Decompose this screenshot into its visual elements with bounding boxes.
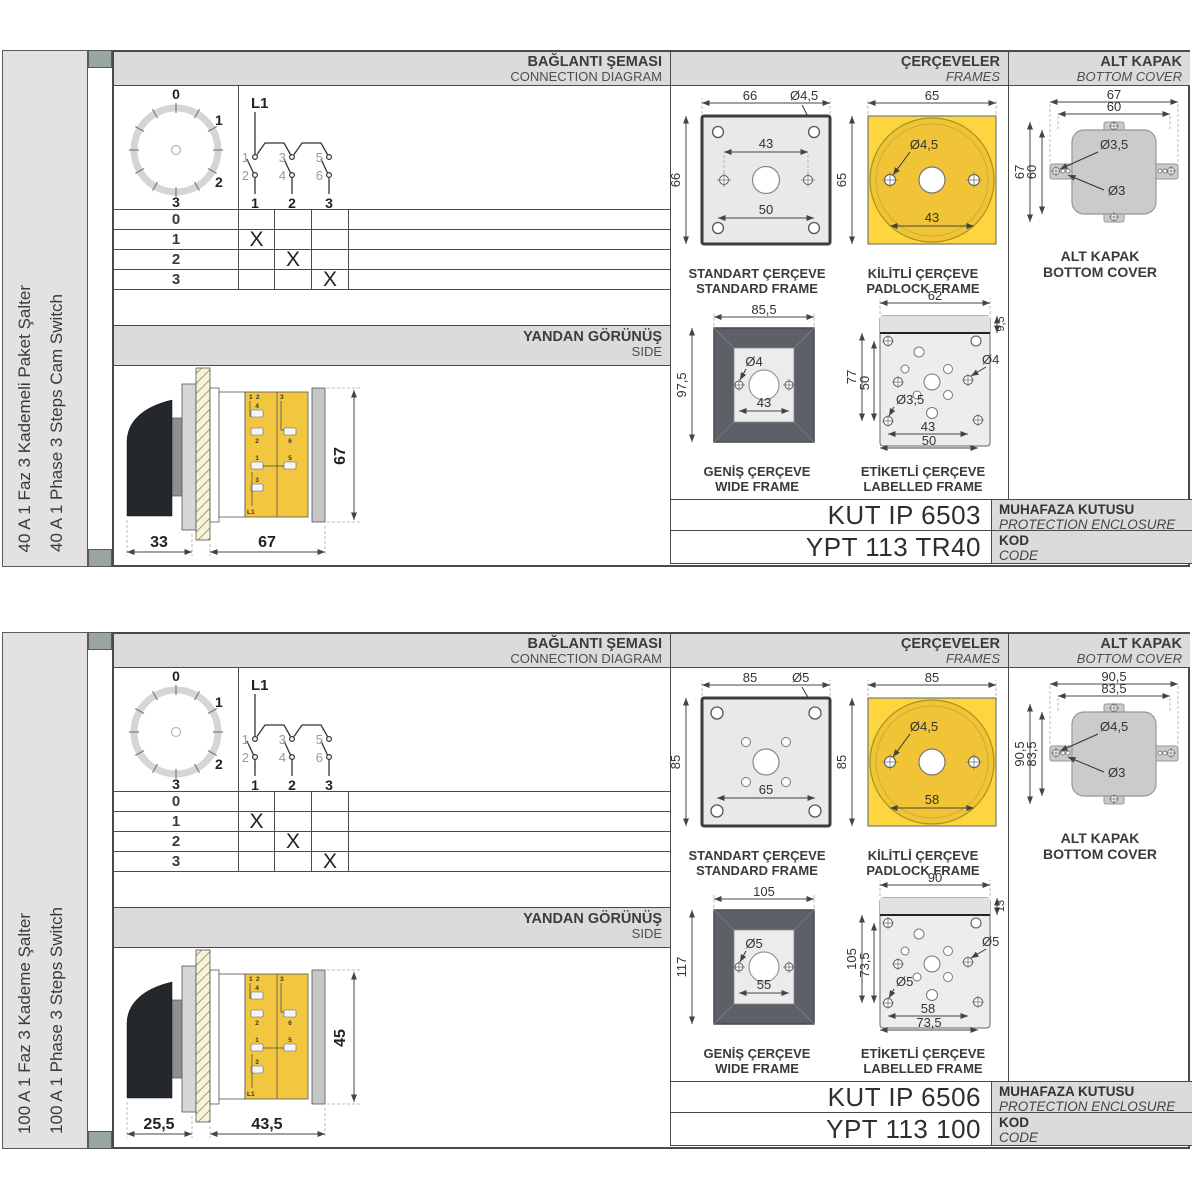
svg-text:5: 5 <box>288 1037 292 1044</box>
datasheet-panel: BAĞLANTI ŞEMASI CONNECTION DIAGRAM ÇERÇE… <box>112 50 1190 567</box>
product-title-tr: 40 A 1 Faz 3 Kademeli Paket Şalter <box>15 285 35 552</box>
mark-cell: X <box>275 250 312 269</box>
side-view-en: SIDE <box>114 927 662 941</box>
dim-mid: 43 <box>759 136 773 151</box>
bottom-cover-caption: ALT KAPAK BOTTOM COVER <box>1014 248 1186 280</box>
dim-hole1: Ø4,5 <box>1100 719 1128 734</box>
dim-body-depth: 67 <box>258 534 276 551</box>
enclosure-code: KUT IP 6503 <box>671 500 991 530</box>
row-label: 3 <box>114 852 239 871</box>
filler-cell <box>349 852 670 871</box>
spine-mark-bottom <box>88 549 112 567</box>
mark-cell <box>312 832 349 851</box>
table-row: 1 X <box>114 812 670 832</box>
header-bottom-cover-en: BOTTOM COVER <box>1009 70 1182 84</box>
caption-en: LABELLED FRAME <box>838 479 1008 494</box>
standard-frame-drawing: 85 Ø5 85 65 <box>674 674 840 846</box>
dim-handle-depth: 25,5 <box>143 1116 174 1133</box>
circuit-cell: L1 1 2 3 4 5 6 1 2 3 <box>239 86 670 210</box>
caption-tr: GENİŞ ÇERÇEVE <box>674 1046 840 1061</box>
table-row: 2 X <box>114 250 670 270</box>
contact-2: 2 <box>242 168 249 183</box>
standard-frame-drawing: 66 Ø4,5 66 43 50 <box>674 92 840 264</box>
table-row: 3 X <box>114 852 670 872</box>
header-bottom-cover: ALT KAPAK BOTTOM COVER <box>1008 52 1190 86</box>
dim-width: 105 <box>753 884 775 899</box>
contact-5: 5 <box>316 150 323 165</box>
dim-spacing: 55 <box>757 977 771 992</box>
product-title-tr: 100 A 1 Faz 3 Kademe Şalter <box>15 913 35 1134</box>
filler-cell <box>349 832 670 851</box>
product-code-label: KOD CODE <box>991 1113 1192 1145</box>
code-label-tr: KOD <box>999 533 1192 548</box>
standard-frame-caption: STANDART ÇERÇEVE STANDARD FRAME <box>674 266 840 296</box>
side-view-drawing: 123 42 61 53 L1 25,5 43,5 45 <box>114 948 670 1152</box>
enclosure-row: KUT IP 6506 MUHAFAZA KUTUSU PROTECTION E… <box>670 1081 1192 1112</box>
dim-hole-right: Ø4 <box>982 352 999 367</box>
product-code-row: YPT 113 TR40 KOD CODE <box>670 530 1192 564</box>
header-side-view: YANDAN GÖRÜNÜŞ SIDE <box>114 907 670 948</box>
dim-spacing1: 58 <box>921 1001 935 1016</box>
dim-width: 62 <box>928 288 942 303</box>
header-connection-tr: BAĞLANTI ŞEMASI <box>114 54 662 70</box>
divider-cover <box>1008 86 1009 499</box>
dim-w2: 83,5 <box>1101 681 1126 696</box>
mark-cell <box>275 210 312 229</box>
enclosure-label: MUHAFAZA KUTUSU PROTECTION ENCLOSURE <box>991 1082 1192 1112</box>
header-connection-tr: BAĞLANTI ŞEMASI <box>114 636 662 652</box>
contact-1: 1 <box>242 732 249 747</box>
dim-hole1: Ø3,5 <box>1100 137 1128 152</box>
feed-label: L1 <box>251 95 269 112</box>
dial-pos-2: 2 <box>215 174 223 190</box>
dim-spacing2: 50 <box>922 433 936 448</box>
svg-text:5: 5 <box>288 455 292 462</box>
mark-cell <box>275 852 312 871</box>
divider-frames <box>670 86 671 499</box>
output-1: 1 <box>251 195 259 211</box>
row-label: 0 <box>114 792 239 811</box>
filler-cell <box>349 230 670 249</box>
dim-hole: Ø4,5 <box>910 719 938 734</box>
svg-text:1: 1 <box>249 394 253 401</box>
dim-height: 65 <box>834 173 849 187</box>
dim-width: 85 <box>743 670 757 685</box>
side-view-en: SIDE <box>114 345 662 359</box>
contact-2: 2 <box>242 750 249 765</box>
dim-height: 117 <box>674 957 689 978</box>
standard-frame-caption: STANDART ÇERÇEVE STANDARD FRAME <box>674 848 840 878</box>
header-connection-en: CONNECTION DIAGRAM <box>114 652 662 666</box>
enclosure-label: MUHAFAZA KUTUSU PROTECTION ENCLOSURE <box>991 500 1192 530</box>
mounting-panel <box>196 950 210 1122</box>
mark-cell <box>275 230 312 249</box>
side-view-drawing: 123 42 61 53 L1 33 67 67 <box>114 366 670 570</box>
contact-1: 1 <box>242 150 249 165</box>
bottom-cover-drawing: 67 60 67 60 Ø3,5 <box>1014 92 1186 244</box>
dim-inner-height: 50 <box>857 376 872 390</box>
circuit-diagram: L1 1 2 3 4 5 6 1 2 3 <box>239 86 670 210</box>
caption-en: BOTTOM COVER <box>1014 264 1186 280</box>
code-label-tr: KOD <box>999 1115 1192 1130</box>
dim-w2: 60 <box>1107 99 1121 114</box>
caption-tr: ETİKETLİ ÇERÇEVE <box>838 1046 1008 1061</box>
filler-cell <box>349 812 670 831</box>
code-label-en: CODE <box>999 548 1192 563</box>
dim-height: 67 <box>332 447 349 465</box>
rotary-dial-diagram: 0 1 2 3 <box>114 86 239 210</box>
dim-hole-left: Ø5 <box>896 974 913 989</box>
product-sidebar: 100 A 1 Faz 3 Kademe Şalter 100 A 1 Phas… <box>2 632 88 1149</box>
dim-hole2: Ø3 <box>1108 765 1125 780</box>
mark-cell <box>312 250 349 269</box>
padlock-frame-drawing: 85 85 Ø4,5 58 <box>840 674 1006 846</box>
product-title-en: 100 A 1 Phase 3 Steps Switch <box>47 907 67 1134</box>
caption-tr: KİLİTLİ ÇERÇEVE <box>840 266 1006 281</box>
contact-5: 5 <box>316 732 323 747</box>
caption-tr: ETİKETLİ ÇERÇEVE <box>838 464 1008 479</box>
dim-height: 66 <box>668 173 683 187</box>
mark-cell <box>239 250 275 269</box>
product-sidebar: 40 A 1 Faz 3 Kademeli Paket Şalter 40 A … <box>2 50 88 567</box>
wide-frame-caption: GENİŞ ÇERÇEVE WIDE FRAME <box>674 1046 840 1076</box>
feed-label: L1 <box>251 677 269 694</box>
header-frames-en: FRAMES <box>671 652 1000 666</box>
header-frames: ÇERÇEVELER FRAMES <box>670 634 1008 668</box>
dim-height: 97,5 <box>674 372 689 397</box>
caption-en: LABELLED FRAME <box>838 1061 1008 1076</box>
mounting-panel <box>196 368 210 540</box>
circuit-cell: L1 1 2 3 4 5 6 1 2 3 <box>239 668 670 792</box>
header-bottom-cover: ALT KAPAK BOTTOM COVER <box>1008 634 1190 668</box>
bottom-cover-caption: ALT KAPAK BOTTOM COVER <box>1014 830 1186 862</box>
header-bottom-cover-tr: ALT KAPAK <box>1009 54 1182 70</box>
mark-cell <box>275 812 312 831</box>
header-bottom-cover-tr: ALT KAPAK <box>1009 636 1182 652</box>
svg-text:L1: L1 <box>247 1091 255 1098</box>
dim-hole: Ø5 <box>745 936 762 951</box>
wide-frame-drawing: 105 117 Ø5 55 <box>674 890 840 1042</box>
mark-cell <box>239 270 275 289</box>
header-side-view: YANDAN GÖRÜNÜŞ SIDE <box>114 325 670 366</box>
enclosure-code: KUT IP 6506 <box>671 1082 991 1112</box>
circuit-diagram: L1 1 2 3 4 5 6 1 2 3 <box>239 668 670 792</box>
header-connection-diagram: BAĞLANTI ŞEMASI CONNECTION DIAGRAM <box>114 634 670 668</box>
row-label: 2 <box>114 250 239 269</box>
dial-pos-1: 1 <box>215 112 223 128</box>
switch-position-table: 0 1 X 2 X 3 <box>114 210 670 290</box>
output-3: 3 <box>325 777 333 793</box>
filler-cell <box>349 210 670 229</box>
rotary-dial-cell: 0 1 2 3 <box>114 668 239 792</box>
product-code-row: YPT 113 100 KOD CODE <box>670 1112 1192 1146</box>
table-row: 1 X <box>114 230 670 250</box>
svg-text:6: 6 <box>288 1020 292 1027</box>
header-bottom-cover-en: BOTTOM COVER <box>1009 652 1182 666</box>
dial-pos-2: 2 <box>215 756 223 772</box>
labelled-frame-caption: ETİKETLİ ÇERÇEVE LABELLED FRAME <box>838 464 1008 494</box>
spine-mark-bottom <box>88 1131 112 1149</box>
caption-en: STANDARD FRAME <box>674 863 840 878</box>
dim-handle-depth: 33 <box>150 534 168 551</box>
spine-mark-top <box>88 632 112 650</box>
dim-hole2: Ø3 <box>1108 183 1125 198</box>
mark-cell: X <box>275 832 312 851</box>
header-frames: ÇERÇEVELER FRAMES <box>670 52 1008 86</box>
mark-cell <box>275 270 312 289</box>
svg-text:3: 3 <box>255 1059 259 1066</box>
side-view-tr: YANDAN GÖRÜNÜŞ <box>114 329 662 345</box>
caption-tr: GENİŞ ÇERÇEVE <box>674 464 840 479</box>
caption-tr: ALT KAPAK <box>1014 830 1186 846</box>
dim-hole: Ø4 <box>745 354 762 369</box>
switch-handle <box>127 982 172 1098</box>
dim-height: 85 <box>668 755 683 769</box>
dim-width: 85,5 <box>751 302 776 317</box>
product-row-100a: 100 A 1 Faz 3 Kademe Şalter 100 A 1 Phas… <box>0 632 1200 1149</box>
output-2: 2 <box>288 777 296 793</box>
filler-cell <box>349 250 670 269</box>
svg-text:3: 3 <box>280 976 284 983</box>
product-title-en: 40 A 1 Phase 3 Steps Cam Switch <box>47 294 67 552</box>
dial-pos-0: 0 <box>172 668 180 684</box>
contact-3: 3 <box>279 732 286 747</box>
table-row: 3 X <box>114 270 670 290</box>
svg-text:2: 2 <box>256 394 260 401</box>
dim-spacing2: 73,5 <box>916 1015 941 1030</box>
svg-text:1: 1 <box>255 455 259 462</box>
mark-cell <box>312 210 349 229</box>
dim-width: 65 <box>925 88 939 103</box>
dim-body-depth: 43,5 <box>251 1116 282 1133</box>
enclosure-row: KUT IP 6503 MUHAFAZA KUTUSU PROTECTION E… <box>670 499 1192 530</box>
mark-cell <box>275 792 312 811</box>
row-label: 1 <box>114 230 239 249</box>
dim-width: 66 <box>743 88 757 103</box>
dim-spacing: 43 <box>757 395 771 410</box>
output-1: 1 <box>251 777 259 793</box>
wide-frame-drawing: 85,5 97,5 Ø4 43 <box>674 308 840 460</box>
product-row-40a: 40 A 1 Faz 3 Kademeli Paket Şalter 40 A … <box>0 50 1200 567</box>
dim-hole: Ø4,5 <box>910 137 938 152</box>
caption-tr: KİLİTLİ ÇERÇEVE <box>840 848 1006 863</box>
product-code: YPT 113 TR40 <box>671 531 991 563</box>
row-label: 2 <box>114 832 239 851</box>
code-label-en: CODE <box>999 1130 1192 1145</box>
contact-6: 6 <box>316 168 323 183</box>
padlock-frame-drawing: 65 65 Ø4,5 43 <box>840 92 1006 264</box>
dim-inner-height: 73,5 <box>857 952 872 977</box>
caption-en: WIDE FRAME <box>674 479 840 494</box>
product-code-label: KOD CODE <box>991 531 1192 563</box>
svg-text:L1: L1 <box>247 509 255 516</box>
svg-text:2: 2 <box>256 976 260 983</box>
contact-6: 6 <box>316 750 323 765</box>
svg-text:3: 3 <box>255 477 259 484</box>
dial-pos-1: 1 <box>215 694 223 710</box>
mark-cell <box>239 832 275 851</box>
svg-text:4: 4 <box>255 403 259 410</box>
switch-handle <box>127 400 172 516</box>
dim-h2: 60 <box>1024 165 1039 179</box>
bottom-cover-drawing: 90,5 83,5 90,5 83,5 Ø4 <box>1014 674 1186 826</box>
spine-mark-top <box>88 50 112 68</box>
mark-cell <box>239 210 275 229</box>
table-row: 2 X <box>114 832 670 852</box>
contact-3: 3 <box>279 150 286 165</box>
filler-cell <box>349 270 670 289</box>
dim-h2: 83,5 <box>1024 741 1039 766</box>
row-label: 3 <box>114 270 239 289</box>
product-code: YPT 113 100 <box>671 1113 991 1145</box>
dim-hole: Ø4,5 <box>790 88 818 103</box>
caption-en: BOTTOM COVER <box>1014 846 1186 862</box>
labelled-frame-drawing: 62 9,5 77 50 <box>838 290 1008 464</box>
svg-text:2: 2 <box>255 1020 259 1027</box>
dial-pos-3: 3 <box>172 776 180 792</box>
contact-4: 4 <box>279 750 286 765</box>
dim-hole: Ø5 <box>792 670 809 685</box>
dim-spacing: 58 <box>925 792 939 807</box>
mark-cell: X <box>239 812 275 831</box>
dial-pos-0: 0 <box>172 86 180 102</box>
dim-bot: 65 <box>759 782 773 797</box>
divider-frames <box>670 668 671 1081</box>
dim-band: 13 <box>995 900 1007 912</box>
caption-en: WIDE FRAME <box>674 1061 840 1076</box>
mark-cell <box>239 852 275 871</box>
header-frames-tr: ÇERÇEVELER <box>671 636 1000 652</box>
header-connection-diagram: BAĞLANTI ŞEMASI CONNECTION DIAGRAM <box>114 52 670 86</box>
enclosure-label-tr: MUHAFAZA KUTUSU <box>999 502 1192 517</box>
mark-cell <box>312 230 349 249</box>
dim-bot: 50 <box>759 202 773 217</box>
row-label: 0 <box>114 210 239 229</box>
dim-spacing: 43 <box>925 210 939 225</box>
mark-cell <box>312 792 349 811</box>
table-row: 0 <box>114 210 670 230</box>
caption-en: STANDARD FRAME <box>674 281 840 296</box>
svg-text:4: 4 <box>255 985 259 992</box>
contact-4: 4 <box>279 168 286 183</box>
divider-cover <box>1008 668 1009 1081</box>
output-2: 2 <box>288 195 296 211</box>
labelled-frame-caption: ETİKETLİ ÇERÇEVE LABELLED FRAME <box>838 1046 1008 1076</box>
labelled-frame-drawing: 90 13 105 73,5 <box>838 872 1008 1046</box>
dim-hole-left: Ø3,5 <box>896 392 924 407</box>
svg-text:6: 6 <box>288 438 292 445</box>
mark-cell: X <box>312 852 349 871</box>
datasheet-panel: BAĞLANTI ŞEMASI CONNECTION DIAGRAM ÇERÇE… <box>112 632 1190 1149</box>
dim-width: 85 <box>925 670 939 685</box>
output-3: 3 <box>325 195 333 211</box>
side-view-tr: YANDAN GÖRÜNÜŞ <box>114 911 662 927</box>
caption-tr: STANDART ÇERÇEVE <box>674 266 840 281</box>
mark-cell <box>239 792 275 811</box>
dim-height: 85 <box>834 755 849 769</box>
mark-cell: X <box>312 270 349 289</box>
svg-text:3: 3 <box>280 394 284 401</box>
enclosure-label-tr: MUHAFAZA KUTUSU <box>999 1084 1192 1099</box>
header-frames-en: FRAMES <box>671 70 1000 84</box>
svg-text:1: 1 <box>249 976 253 983</box>
dial-pos-3: 3 <box>172 194 180 210</box>
svg-text:1: 1 <box>255 1037 259 1044</box>
header-connection-en: CONNECTION DIAGRAM <box>114 70 662 84</box>
dim-band: 9,5 <box>995 316 1007 331</box>
dim-width: 90 <box>928 870 942 885</box>
switch-position-table: 0 1 X 2 X 3 <box>114 792 670 872</box>
svg-text:2: 2 <box>255 438 259 445</box>
mark-cell <box>312 812 349 831</box>
header-frames-tr: ÇERÇEVELER <box>671 54 1000 70</box>
caption-tr: ALT KAPAK <box>1014 248 1186 264</box>
mark-cell: X <box>239 230 275 249</box>
row-label: 1 <box>114 812 239 831</box>
rotary-dial-diagram: 0 1 2 3 <box>114 668 239 792</box>
dim-height: 45 <box>332 1029 349 1047</box>
dim-hole-right: Ø5 <box>982 934 999 949</box>
filler-cell <box>349 792 670 811</box>
dim-spacing1: 43 <box>921 419 935 434</box>
rotary-dial-cell: 0 1 2 3 <box>114 86 239 210</box>
wide-frame-caption: GENİŞ ÇERÇEVE WIDE FRAME <box>674 464 840 494</box>
caption-tr: STANDART ÇERÇEVE <box>674 848 840 863</box>
table-row: 0 <box>114 792 670 812</box>
